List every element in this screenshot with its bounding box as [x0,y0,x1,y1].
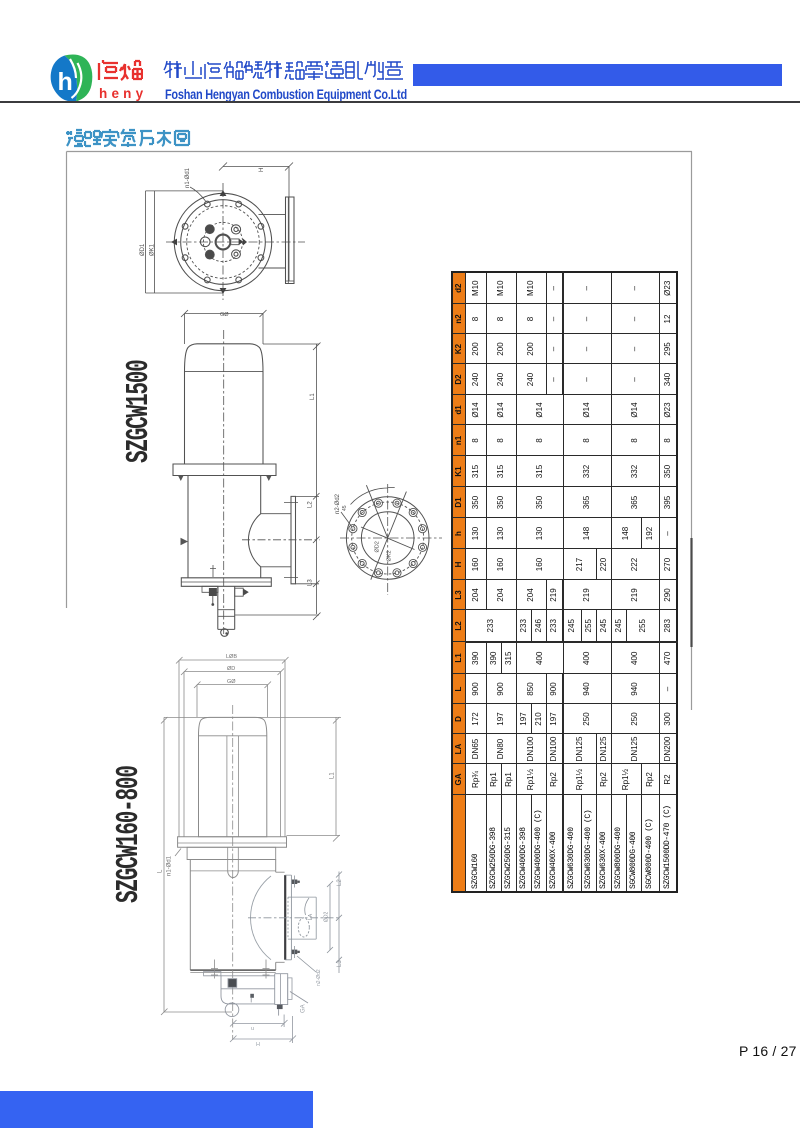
svg-text:u: u [251,1026,254,1032]
svg-text:L2: L2 [308,501,314,508]
svg-text:ØK2: ØK2 [387,550,393,561]
svg-text:45: 45 [342,505,348,511]
svg-text:GA: GA [301,1004,307,1013]
svg-text:n1-Ød1: n1-Ød1 [185,167,191,188]
svg-text:n2-Ød2: n2-Ød2 [316,969,322,986]
svg-text:ØD2: ØD2 [375,541,381,552]
svg-text:h: h [58,68,73,96]
svg-text:SZGCW1500: SZGCW1500 [122,360,157,463]
svg-text:n1-Ød1: n1-Ød1 [167,855,173,876]
svg-text:ØD1: ØD1 [140,243,146,256]
svg-text:ØD2: ØD2 [324,912,330,923]
svg-text:L3: L3 [337,960,343,967]
svg-text:LØB: LØB [226,654,237,660]
svg-text:L3: L3 [308,579,314,586]
svg-text:L2: L2 [337,879,343,886]
svg-text:L1: L1 [310,393,316,400]
svg-text:H: H [256,1042,260,1048]
svg-text:L: L [158,869,164,873]
svg-text:ØD: ØD [227,666,235,672]
svg-text:H: H [259,168,265,172]
svg-text:ØK1: ØK1 [150,243,156,256]
svg-text:L1: L1 [330,772,336,779]
svg-text:SZGCW160-800: SZGCW160-800 [112,766,147,903]
svg-text:GØ: GØ [220,312,229,318]
svg-text:n2-Ød2: n2-Ød2 [335,493,341,514]
svg-text:LA: LA [308,913,314,920]
svg-text:GØ: GØ [227,679,236,685]
